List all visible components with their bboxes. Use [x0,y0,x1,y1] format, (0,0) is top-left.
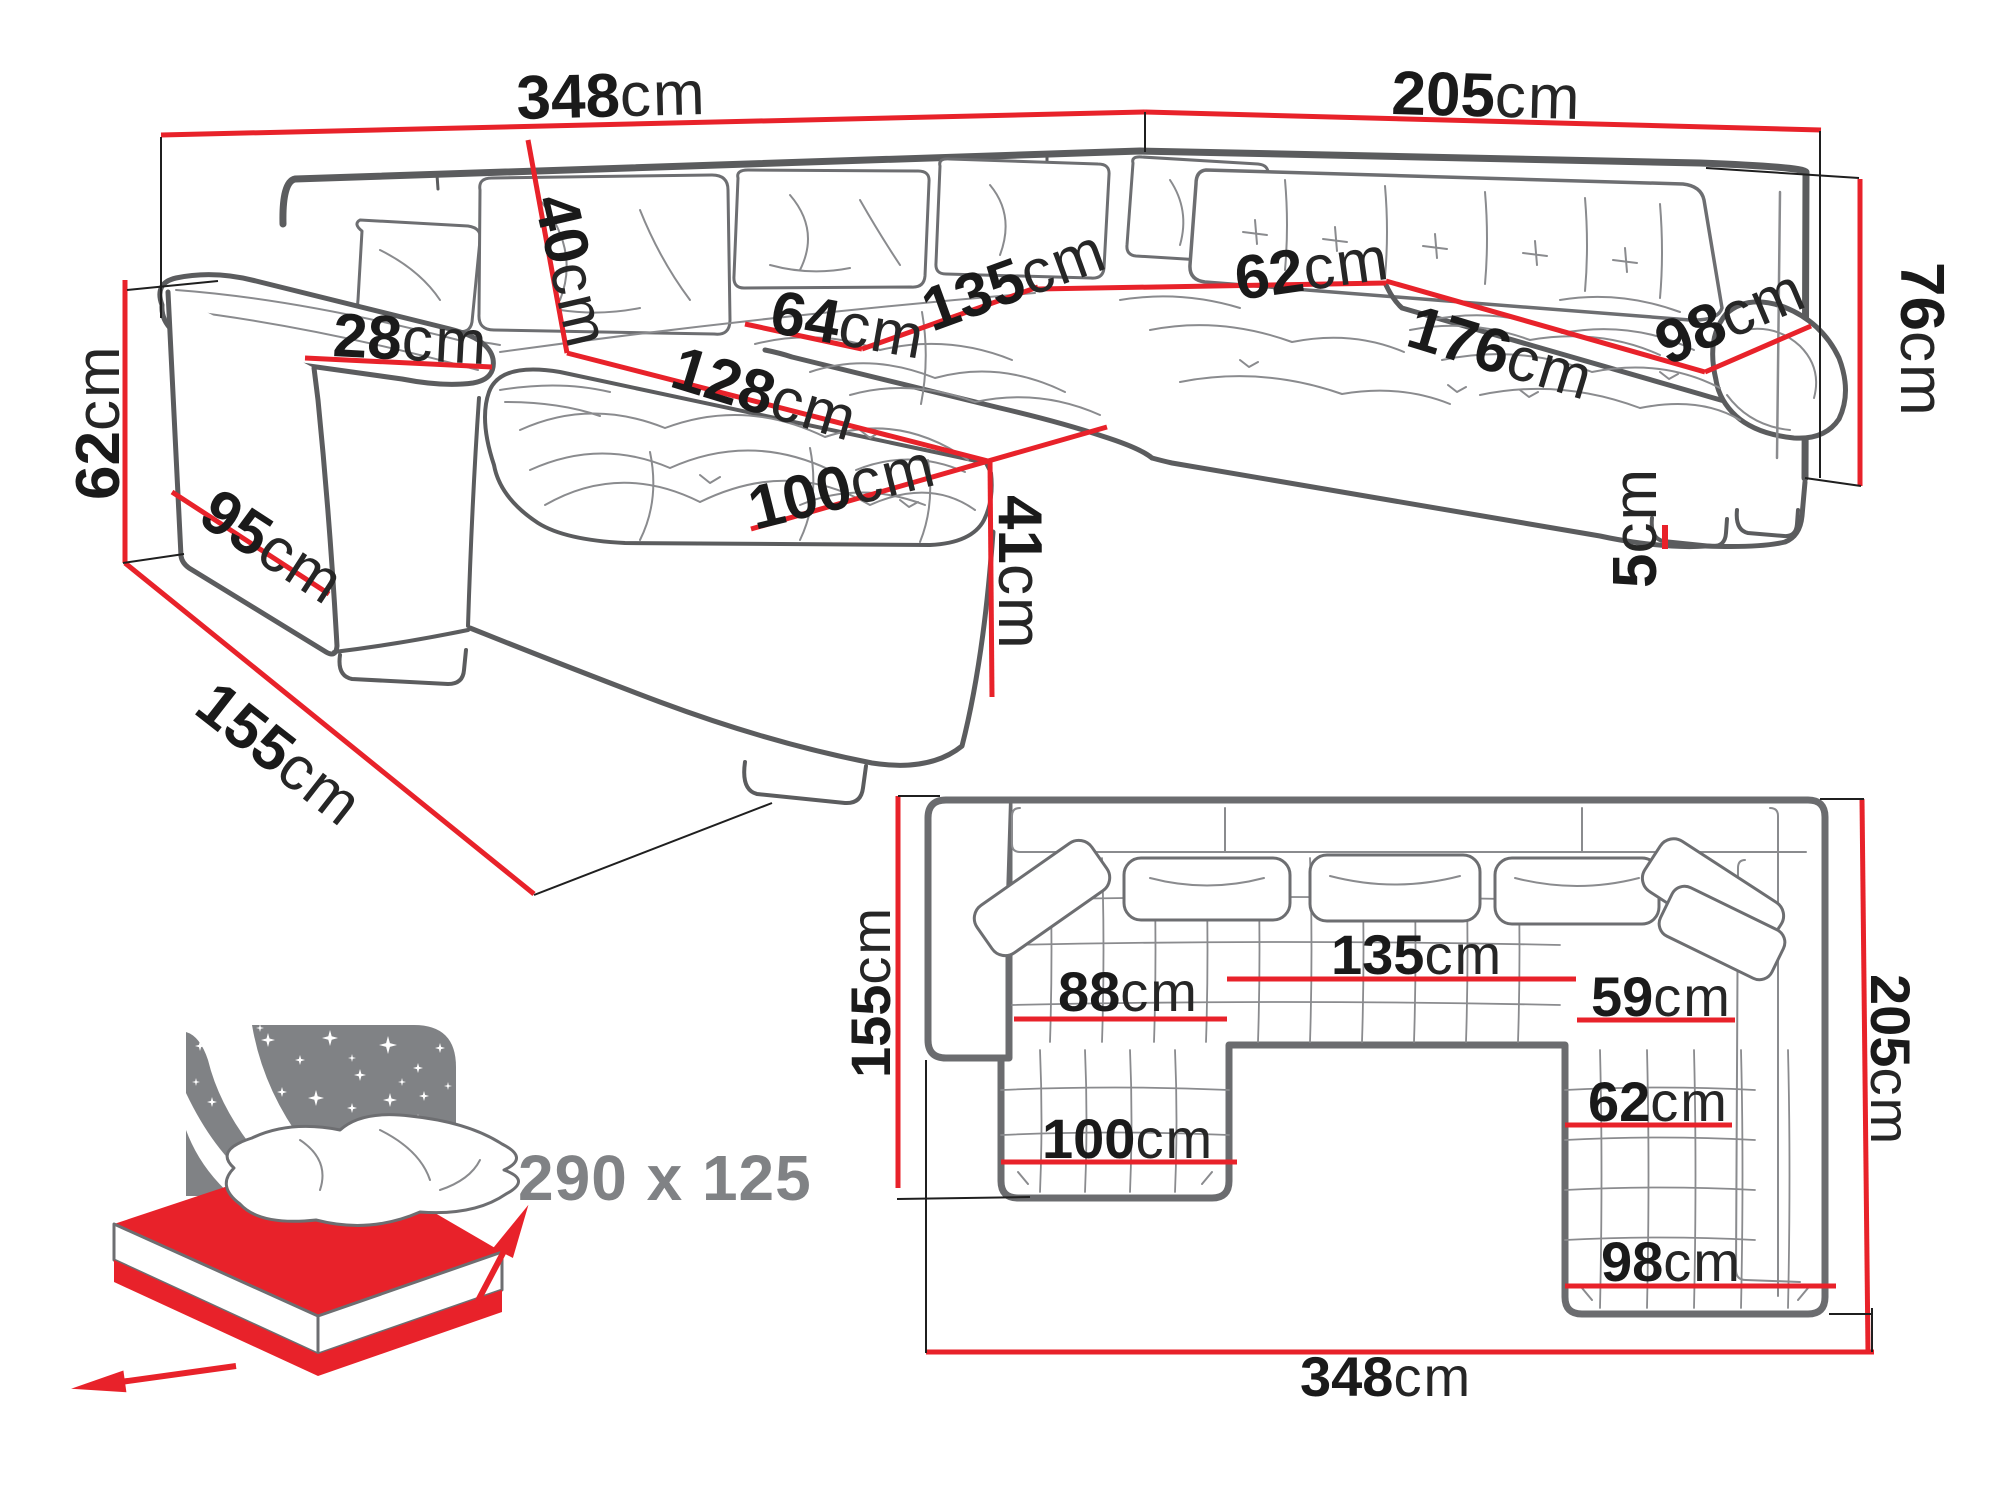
svg-text:41cm: 41cm [985,495,1054,651]
svg-text:62cm: 62cm [1588,1070,1729,1133]
svg-text:5cm: 5cm [1601,467,1670,588]
svg-text:28cm: 28cm [331,301,490,378]
svg-text:76cm: 76cm [1887,262,1956,418]
svg-text:59cm: 59cm [1591,965,1732,1028]
svg-text:348cm: 348cm [516,59,708,133]
svg-text:135cm: 135cm [1331,923,1503,986]
svg-text:100cm: 100cm [1042,1107,1214,1170]
svg-text:88cm: 88cm [1058,960,1199,1023]
svg-text:348cm: 348cm [1300,1345,1472,1408]
svg-text:205cm: 205cm [1859,974,1922,1146]
svg-text:205cm: 205cm [1391,59,1583,133]
svg-text:290 x 125: 290 x 125 [518,1142,812,1214]
svg-text:155cm: 155cm [839,906,902,1078]
svg-text:62cm: 62cm [64,344,133,500]
svg-text:98cm: 98cm [1601,1230,1742,1293]
